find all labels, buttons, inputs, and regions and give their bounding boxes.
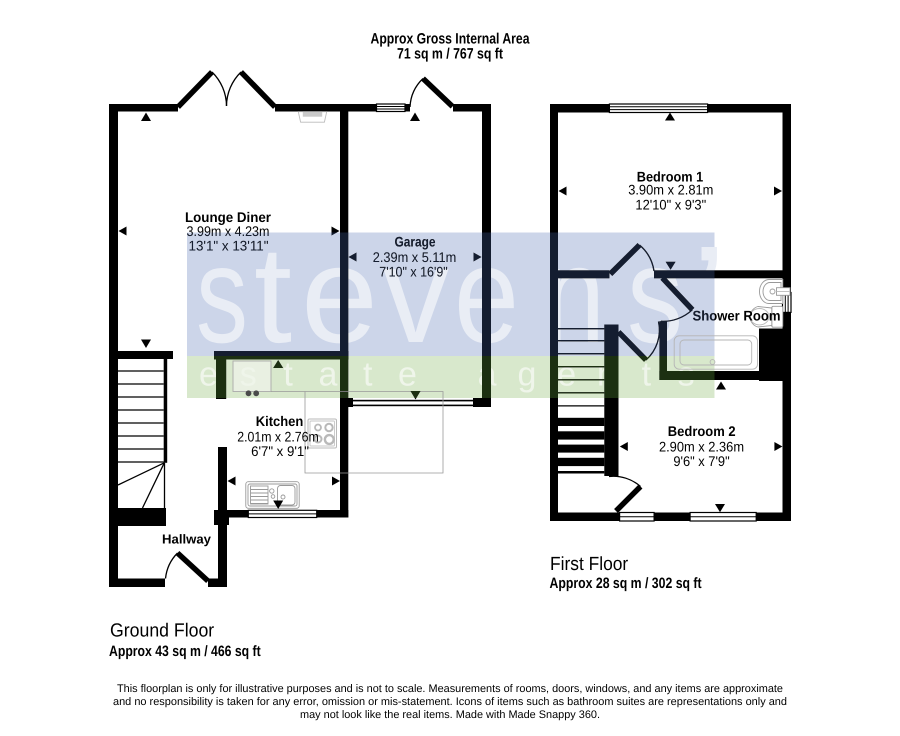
svg-text:This floorplan is only for ill: This floorplan is only for illustrative … (117, 683, 783, 695)
svg-text:Bedroom 2: Bedroom 2 (668, 423, 736, 439)
svg-text:71 sq m / 767 sq ft: 71 sq m / 767 sq ft (397, 46, 503, 63)
svg-text:Kitchen: Kitchen (256, 413, 304, 429)
svg-text:Hallway: Hallway (162, 532, 212, 547)
svg-text:Approx 43 sq m / 466 sq ft: Approx 43 sq m / 466 sq ft (109, 643, 261, 660)
svg-text:and no responsibility is taken: and no responsibility is taken for any e… (113, 696, 787, 708)
svg-text:may not look like the real ite: may not look like the real items. Made w… (300, 709, 600, 721)
svg-text:3.90m x 2.81m: 3.90m x 2.81m (628, 182, 713, 198)
svg-text:Ground Floor: Ground Floor (110, 621, 215, 642)
svg-text:6'7" x 9'1": 6'7" x 9'1" (251, 443, 309, 459)
svg-text:12'10" x 9'3": 12'10" x 9'3" (635, 197, 706, 213)
svg-text:Approx 28 sq m / 302 sq ft: Approx 28 sq m / 302 sq ft (550, 575, 702, 592)
svg-text:9'6" x 7'9": 9'6" x 7'9" (673, 453, 729, 469)
svg-text:First Floor: First Floor (550, 554, 629, 575)
